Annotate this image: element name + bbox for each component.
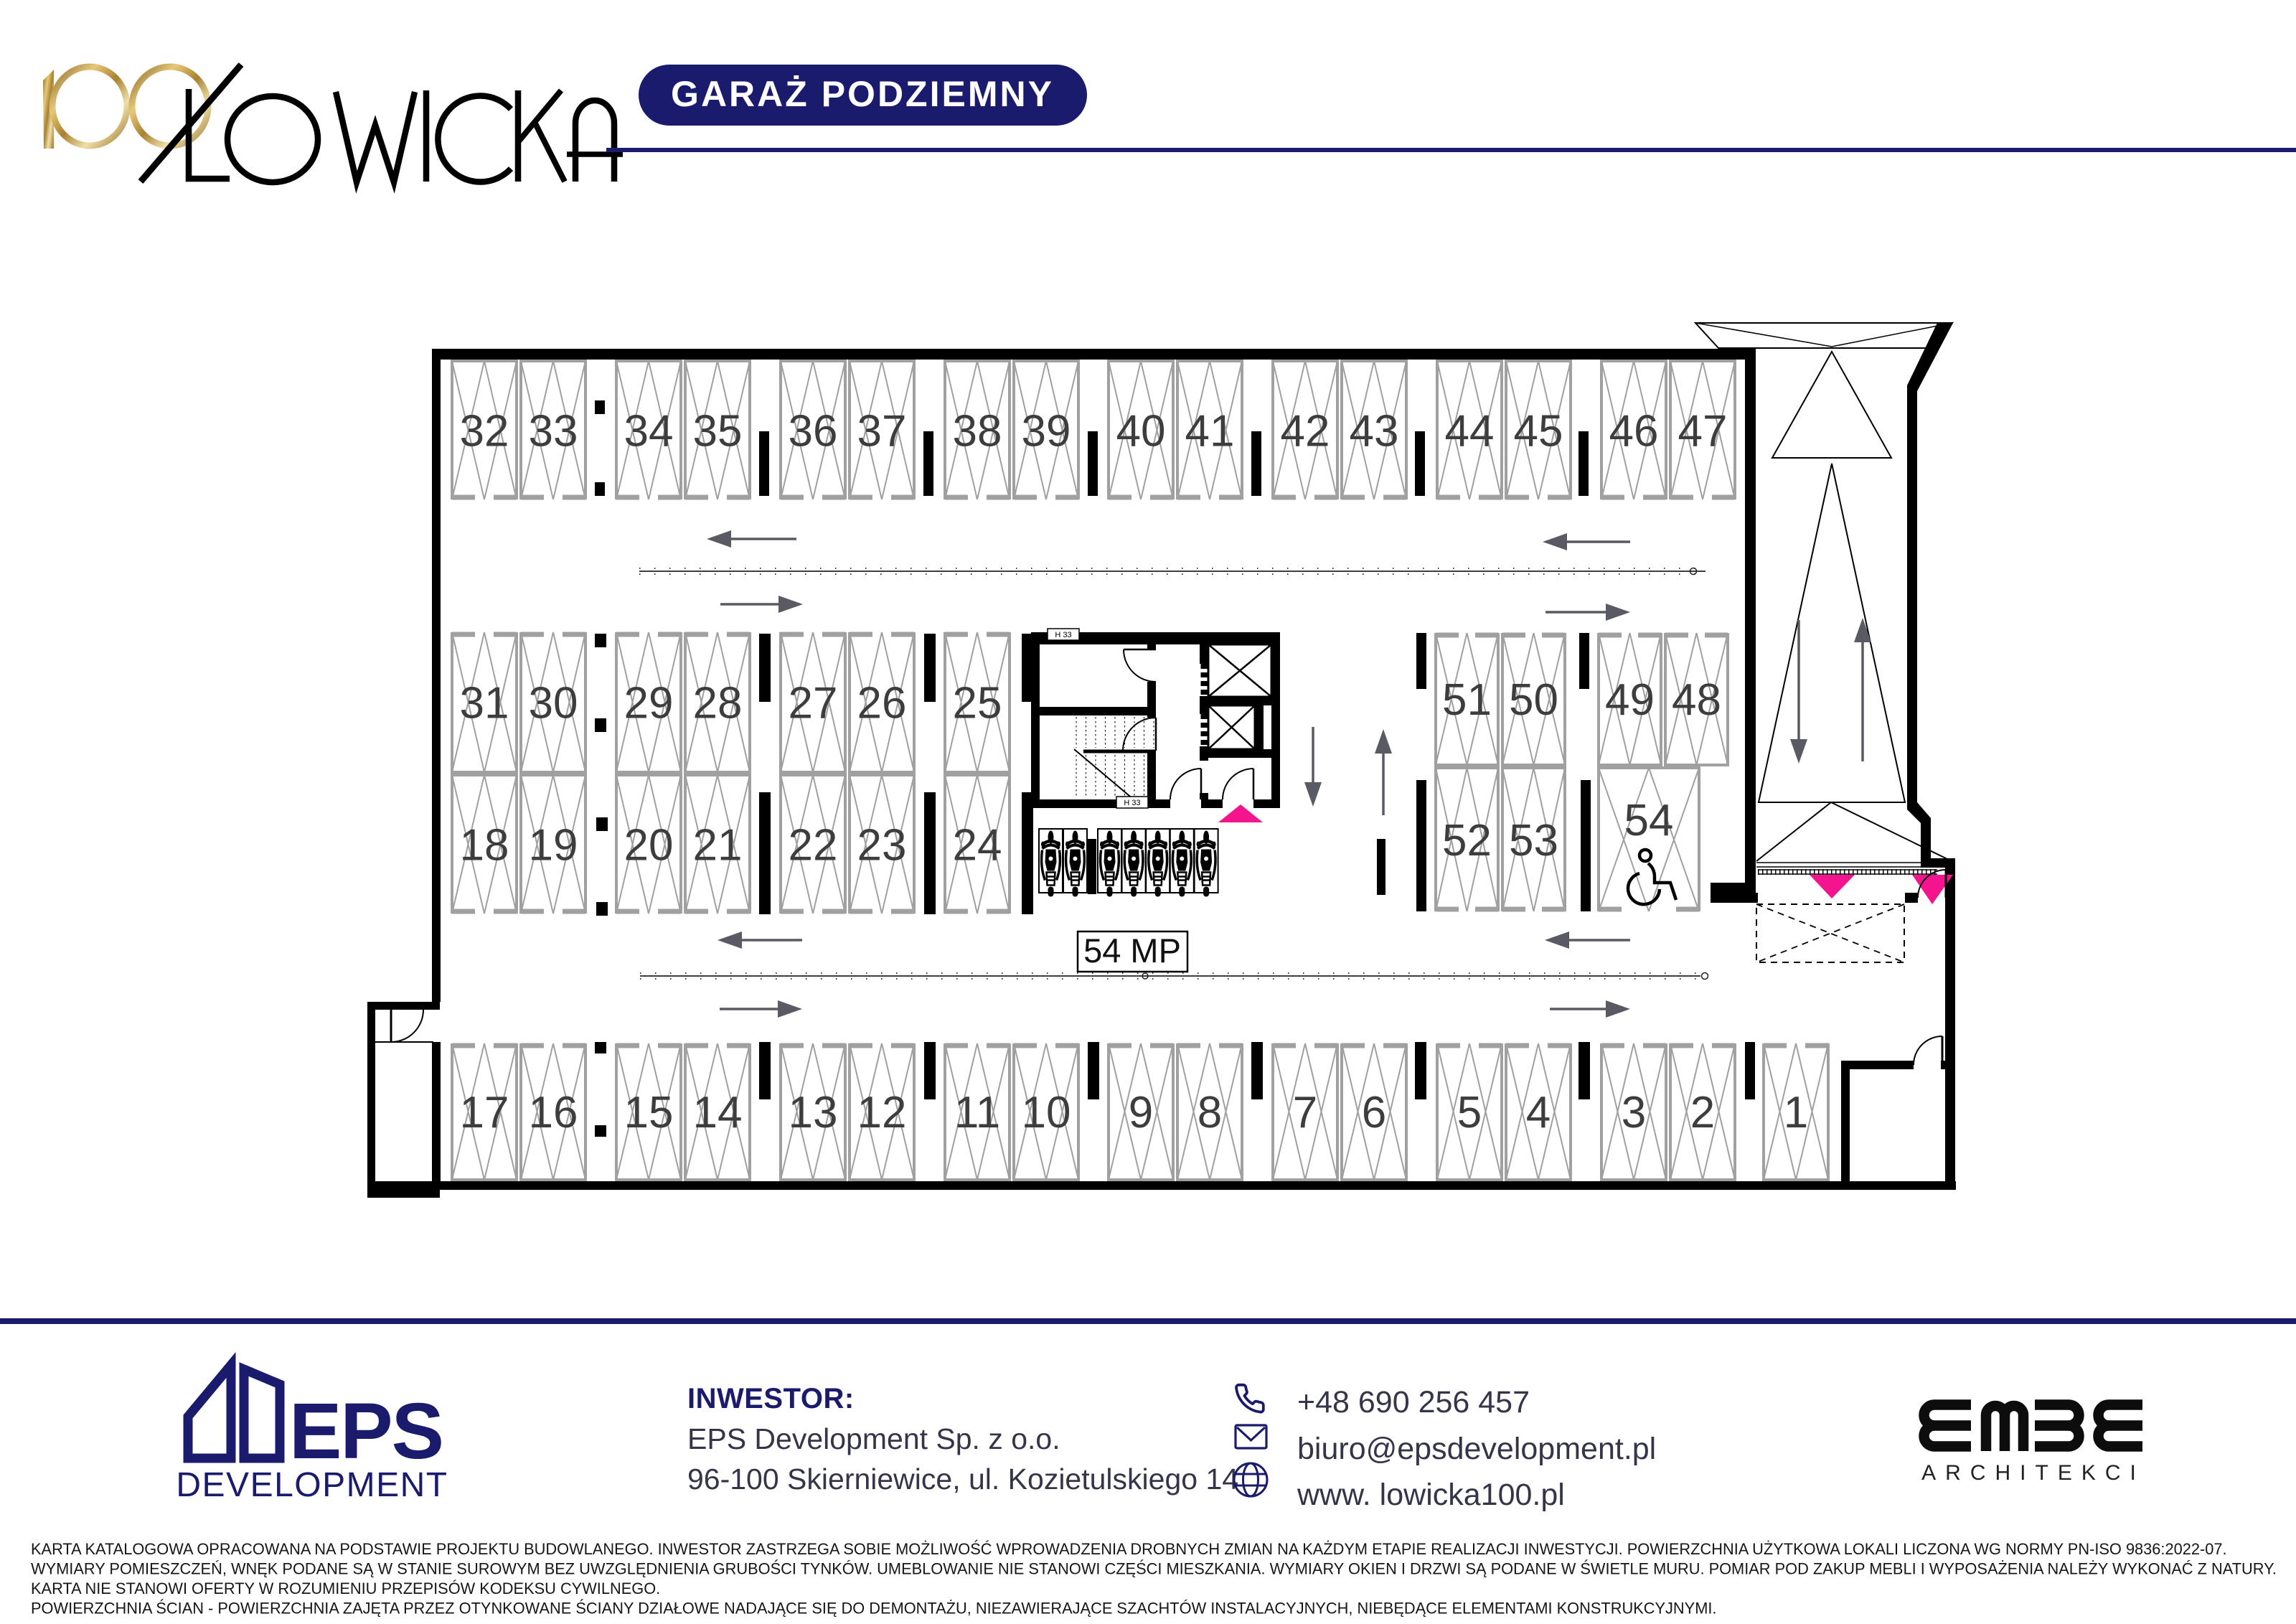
svg-text:1: 1 — [1784, 1088, 1808, 1137]
svg-text:26: 26 — [857, 679, 907, 728]
svg-text:15: 15 — [624, 1088, 674, 1137]
svg-text:20: 20 — [624, 821, 674, 870]
svg-text:96-100 Skierniewice, ul. Kozie: 96-100 Skierniewice, ul. Kozietulskiego … — [687, 1463, 1238, 1496]
svg-text:50: 50 — [1509, 675, 1558, 725]
svg-text:17: 17 — [460, 1088, 509, 1137]
svg-text:45: 45 — [1514, 407, 1563, 456]
svg-text:3: 3 — [1622, 1088, 1646, 1137]
svg-text:KARTA NIE STANOWI OFERTY W ROZ: KARTA NIE STANOWI OFERTY W ROZUMIENIU PR… — [31, 1580, 660, 1597]
svg-text:34: 34 — [624, 407, 674, 456]
svg-text:36: 36 — [789, 407, 838, 456]
svg-text:27: 27 — [789, 679, 838, 728]
svg-text:+48 690 256 457: +48 690 256 457 — [1297, 1385, 1530, 1419]
svg-text:29: 29 — [624, 679, 674, 728]
svg-text:10: 10 — [1022, 1088, 1071, 1137]
svg-text:GARAŻ PODZIEMNY: GARAŻ PODZIEMNY — [671, 74, 1054, 114]
svg-text:38: 38 — [953, 407, 1002, 456]
svg-text:EPS Development Sp. z o.o.: EPS Development Sp. z o.o. — [687, 1422, 1060, 1455]
svg-text:35: 35 — [693, 407, 743, 456]
svg-text:6: 6 — [1362, 1088, 1386, 1137]
svg-text:39: 39 — [1022, 407, 1071, 456]
svg-text:46: 46 — [1609, 407, 1659, 456]
svg-text:48: 48 — [1672, 675, 1721, 725]
svg-text:49: 49 — [1605, 675, 1655, 725]
svg-text:21: 21 — [693, 821, 743, 870]
svg-text:30: 30 — [529, 679, 578, 728]
svg-text:www. lowicka100.pl: www. lowicka100.pl — [1297, 1478, 1565, 1512]
svg-text:9: 9 — [1129, 1088, 1153, 1137]
svg-text:37: 37 — [857, 407, 907, 456]
svg-text:24: 24 — [953, 821, 1002, 870]
svg-text:WYMIARY POMIESZCZEŃ, WNĘK PODA: WYMIARY POMIESZCZEŃ, WNĘK PODANE SĄ W ST… — [31, 1560, 2277, 1578]
svg-text:INWESTOR:: INWESTOR: — [687, 1383, 855, 1414]
svg-text:18: 18 — [460, 821, 509, 870]
svg-text:19: 19 — [529, 821, 578, 870]
svg-text:42: 42 — [1281, 407, 1330, 456]
svg-text:2: 2 — [1690, 1088, 1715, 1137]
svg-text:32: 32 — [460, 407, 509, 456]
svg-text:44: 44 — [1445, 407, 1495, 456]
svg-text:13: 13 — [789, 1088, 838, 1137]
svg-text:14: 14 — [693, 1088, 743, 1137]
svg-text:54 MP: 54 MP — [1083, 931, 1181, 970]
svg-text:47: 47 — [1678, 407, 1728, 456]
svg-text:KARTA KATALOGOWA OPRACOWANA NA: KARTA KATALOGOWA OPRACOWANA NA PODSTAWIE… — [31, 1540, 2227, 1558]
svg-text:11: 11 — [954, 1088, 1000, 1137]
svg-text:53: 53 — [1509, 816, 1558, 865]
svg-text:ARCHITEKCI: ARCHITEKCI — [1921, 1461, 2145, 1485]
svg-text:40: 40 — [1116, 407, 1166, 456]
svg-text:51: 51 — [1442, 675, 1492, 725]
svg-text:4: 4 — [1526, 1088, 1551, 1137]
svg-text:12: 12 — [857, 1088, 907, 1137]
svg-text:DEVELOPMENT: DEVELOPMENT — [176, 1466, 448, 1504]
svg-text:16: 16 — [529, 1088, 578, 1137]
svg-text:54: 54 — [1624, 796, 1674, 845]
svg-text:7: 7 — [1293, 1088, 1317, 1137]
svg-text:H 33: H 33 — [1055, 631, 1071, 639]
svg-text:8: 8 — [1198, 1088, 1222, 1137]
svg-text:biuro@epsdevelopment.pl: biuro@epsdevelopment.pl — [1297, 1432, 1656, 1466]
svg-text:25: 25 — [953, 679, 1002, 728]
svg-text:43: 43 — [1350, 407, 1399, 456]
svg-text:23: 23 — [857, 821, 907, 870]
svg-text:POWIERZCHNIA ŚCIAN - POWIERZCH: POWIERZCHNIA ŚCIAN - POWIERZCHNIA ZAJĘTA… — [31, 1600, 1716, 1618]
svg-text:31: 31 — [460, 679, 509, 728]
svg-text:41: 41 — [1185, 407, 1235, 456]
svg-text:5: 5 — [1457, 1088, 1482, 1137]
svg-text:52: 52 — [1442, 816, 1492, 865]
svg-text:33: 33 — [529, 407, 578, 456]
svg-text:22: 22 — [789, 821, 838, 870]
svg-text:EPS: EPS — [289, 1387, 443, 1475]
svg-text:28: 28 — [693, 679, 743, 728]
svg-text:H 33: H 33 — [1124, 799, 1140, 807]
